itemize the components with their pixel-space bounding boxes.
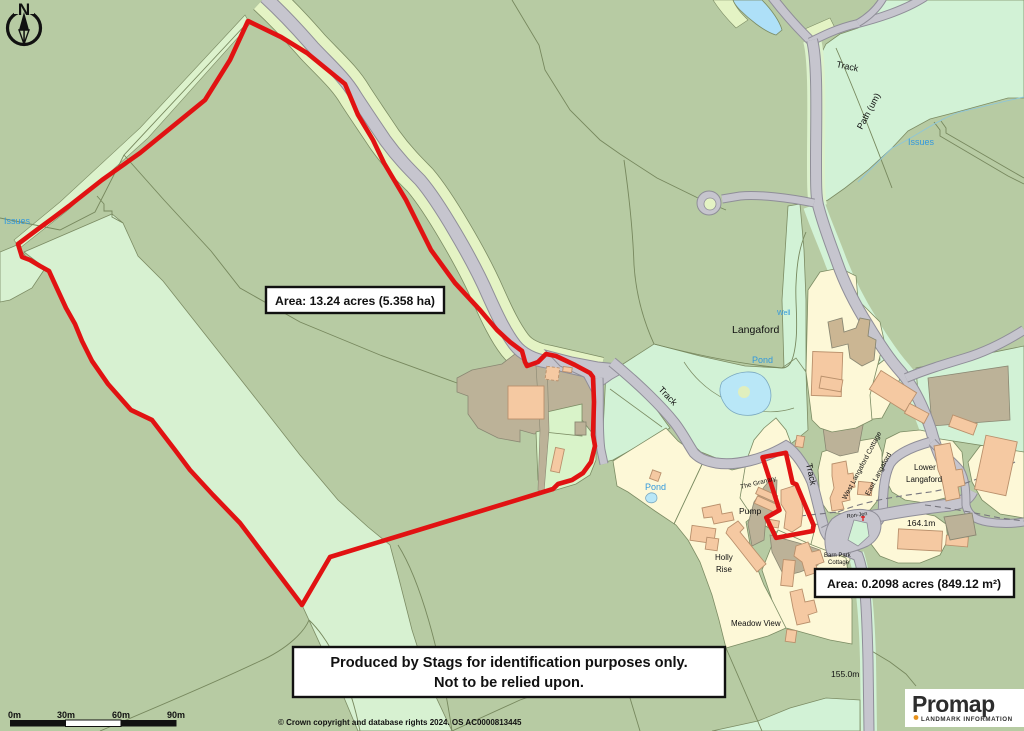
- svg-text:Rise: Rise: [716, 565, 733, 574]
- svg-text:Promap: Promap: [912, 691, 995, 717]
- svg-text:Pond: Pond: [752, 355, 773, 365]
- svg-text:Pump: Pump: [739, 506, 761, 516]
- svg-text:LANDMARK INFORMATION: LANDMARK INFORMATION: [921, 716, 1013, 723]
- svg-text:Lower: Lower: [914, 463, 936, 472]
- svg-text:0m: 0m: [8, 710, 21, 720]
- svg-text:Langaford: Langaford: [732, 324, 779, 336]
- svg-text:Area: 0.2098 acres (849.12 m²): Area: 0.2098 acres (849.12 m²): [827, 577, 1001, 591]
- svg-text:Issues: Issues: [908, 137, 935, 147]
- svg-text:Area: 13.24 acres (5.358 ha): Area: 13.24 acres (5.358 ha): [275, 294, 435, 308]
- svg-text:Holly: Holly: [715, 553, 733, 562]
- svg-text:© Crown copyright and database: © Crown copyright and database rights 20…: [278, 718, 522, 727]
- svg-text:Produced by Stags for identifi: Produced by Stags for identification pur…: [330, 655, 687, 671]
- svg-text:Meadow View: Meadow View: [731, 619, 781, 628]
- svg-text:90m: 90m: [167, 710, 185, 720]
- svg-text:Not to be relied upon.: Not to be relied upon.: [434, 675, 584, 691]
- svg-text:Pond: Pond: [645, 482, 666, 492]
- svg-text:164.1m: 164.1m: [907, 518, 935, 528]
- svg-text:30m: 30m: [57, 710, 75, 720]
- svg-text:Cottage: Cottage: [828, 560, 850, 566]
- svg-text:155.0m: 155.0m: [831, 669, 859, 679]
- svg-text:60m: 60m: [112, 710, 130, 720]
- svg-text:Issues: Issues: [4, 216, 31, 226]
- svg-text:Well: Well: [777, 310, 791, 317]
- svg-text:Barn Park: Barn Park: [824, 553, 852, 559]
- svg-text:Langaford: Langaford: [906, 475, 942, 484]
